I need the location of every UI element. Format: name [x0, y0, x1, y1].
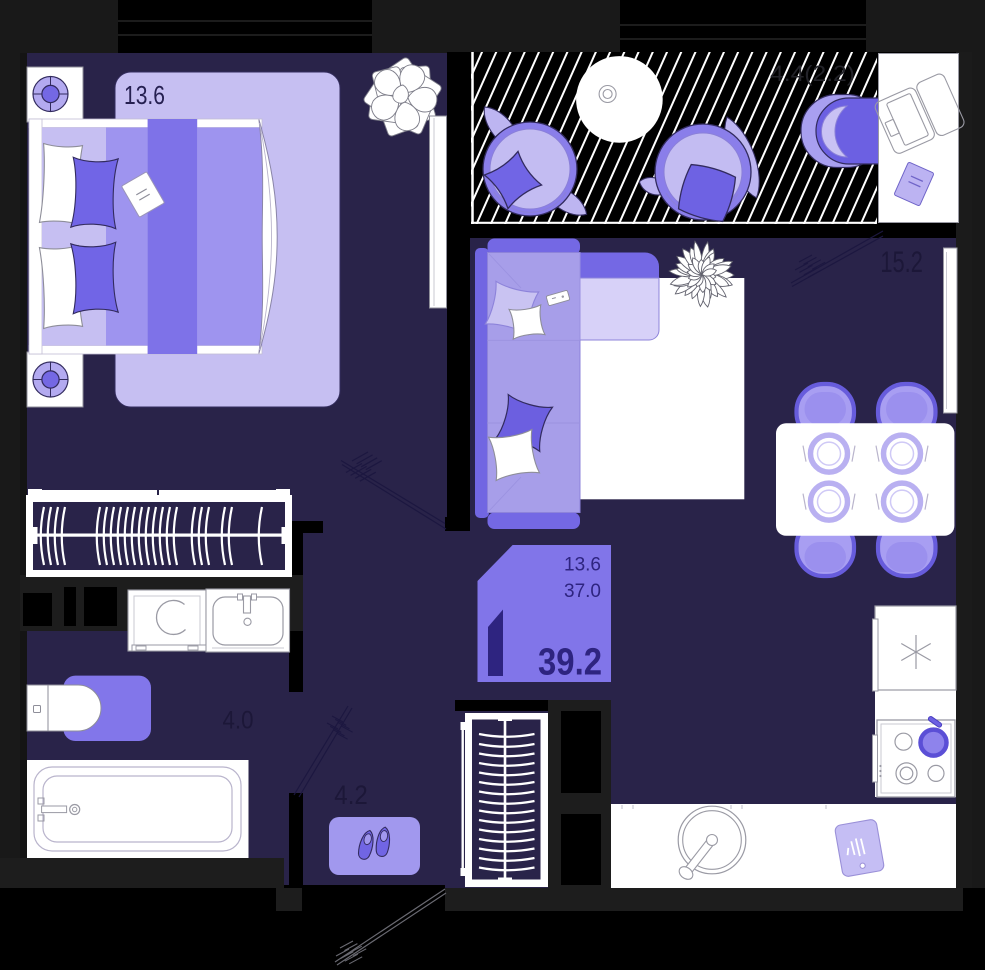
svg-text:4.0: 4.0 [223, 707, 254, 735]
svg-text:4.4(2.2): 4.4(2.2) [770, 61, 855, 86]
svg-text:39.2: 39.2 [538, 642, 602, 684]
svg-text:13.6: 13.6 [124, 80, 165, 110]
svg-text:4.2: 4.2 [334, 780, 368, 810]
svg-text:15.2: 15.2 [880, 246, 923, 279]
svg-text:13.6: 13.6 [564, 554, 601, 576]
svg-text:37.0: 37.0 [564, 580, 601, 602]
